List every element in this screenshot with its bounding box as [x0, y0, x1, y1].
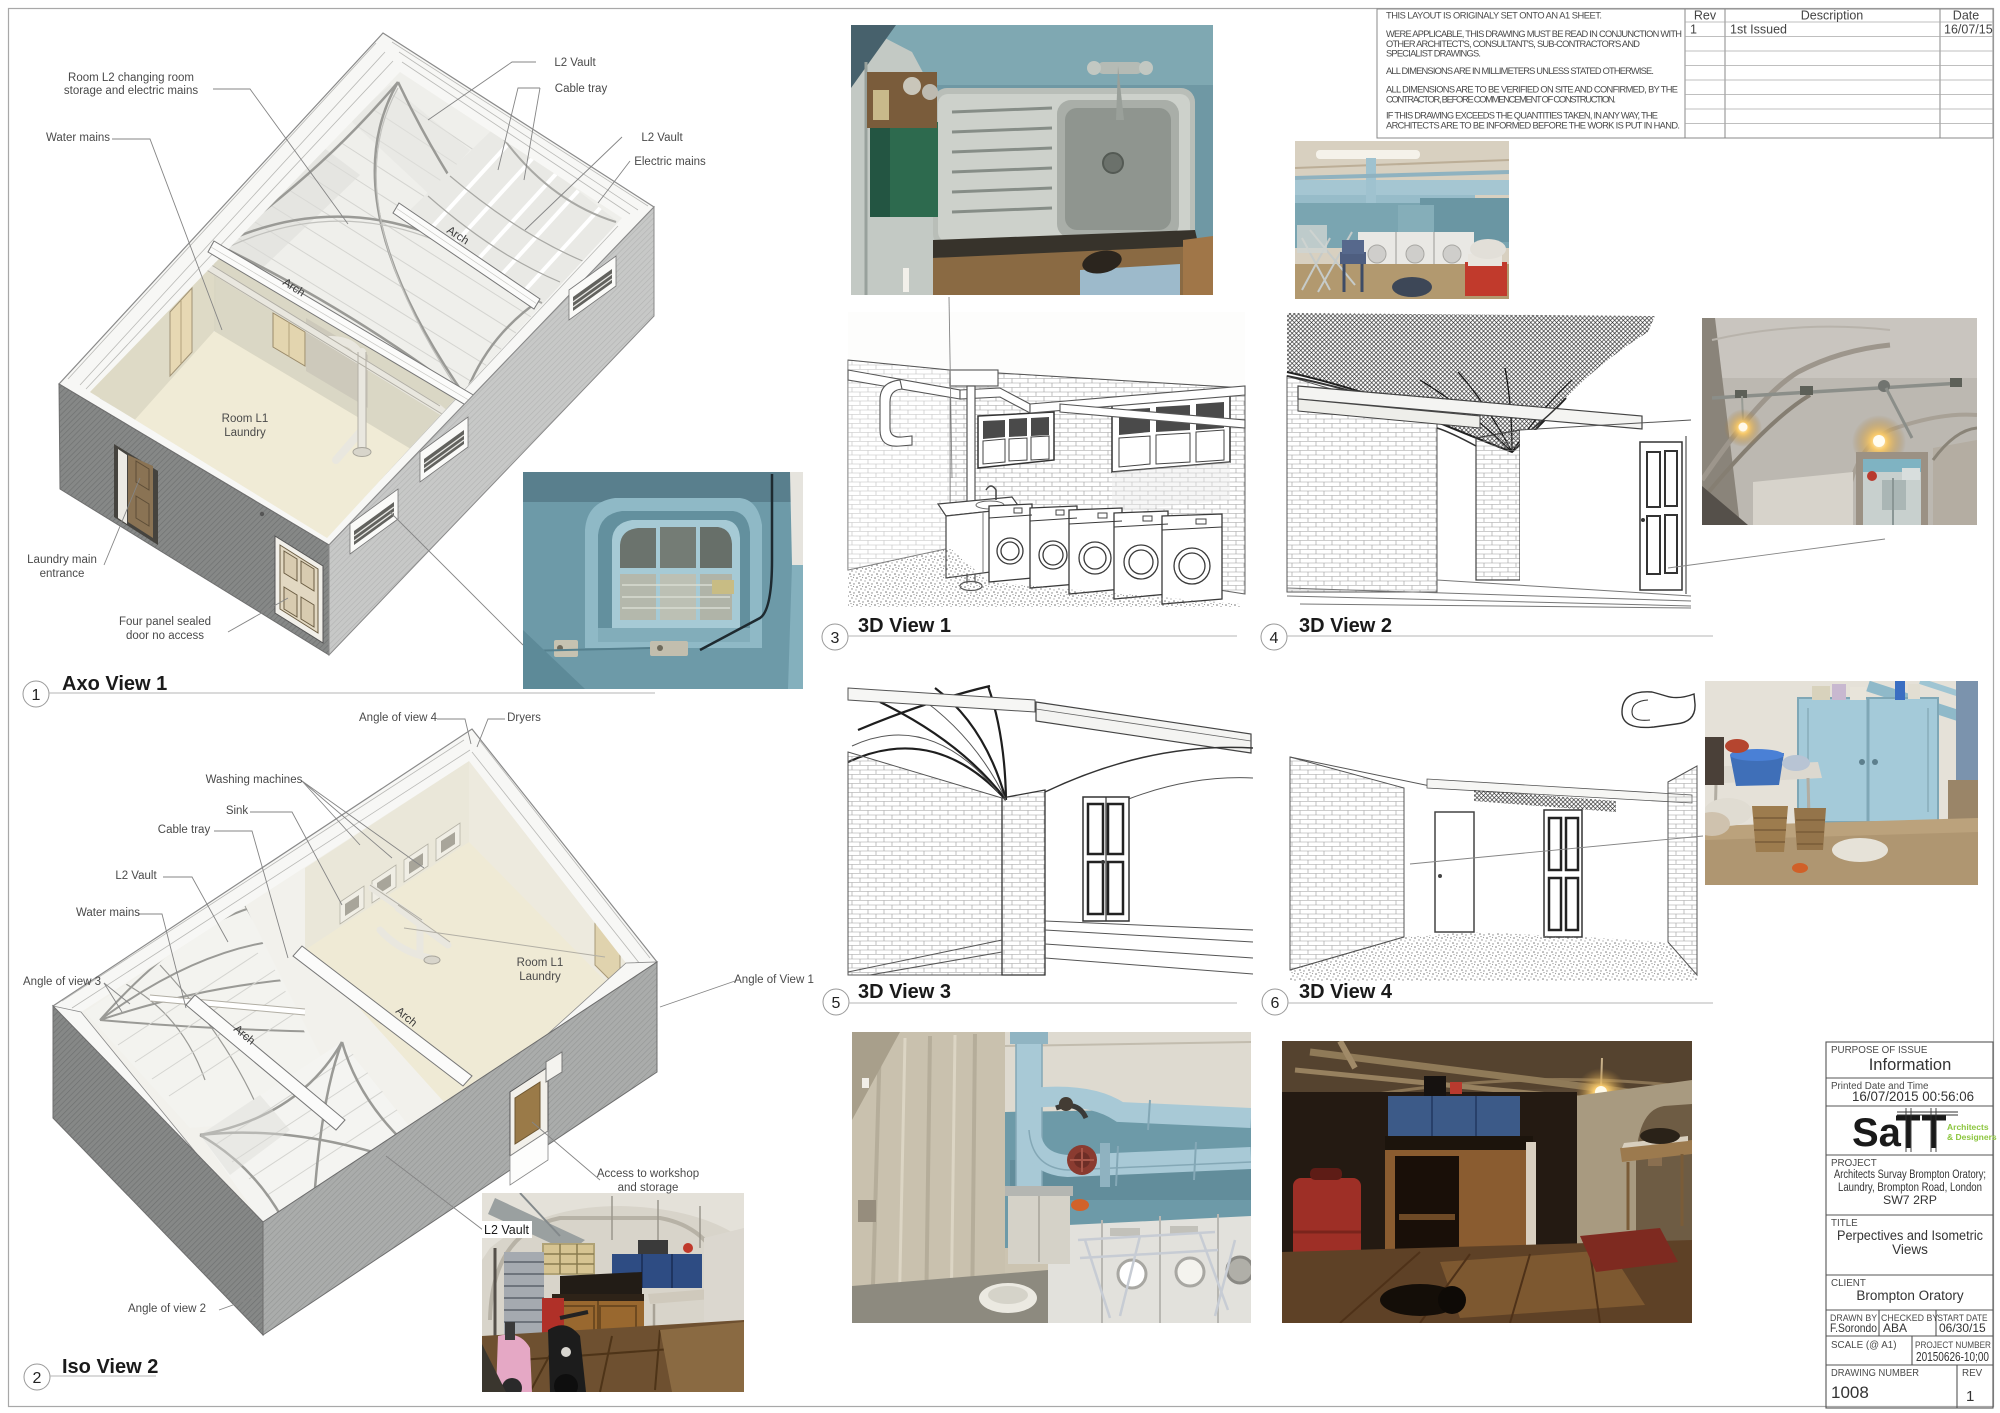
- svg-text:Washing machines: Washing machines: [206, 774, 303, 786]
- svg-text:ARCHITECTS ARE TO BE INFORMED: ARCHITECTS ARE TO BE INFORMED BEFORE THE…: [1386, 120, 1680, 130]
- svg-text:1008: 1008: [1831, 1383, 1869, 1402]
- svg-text:Brompton Oratory: Brompton Oratory: [1856, 1288, 1964, 1303]
- svg-text:Sa: Sa: [1852, 1111, 1902, 1155]
- svg-text:Laundry, Brompton Road, London: Laundry, Brompton Road, London: [1838, 1180, 1982, 1194]
- svg-text:1: 1: [1966, 1388, 1974, 1405]
- svg-text:Perpectives and Isometric: Perpectives and Isometric: [1837, 1228, 1983, 1243]
- svg-text:& Designers: & Designers: [1947, 1132, 1997, 1142]
- svg-text:Cable tray: Cable tray: [555, 83, 608, 95]
- svg-text:Room L1: Room L1: [222, 413, 269, 425]
- svg-text:16/07/2015 00:56:06: 16/07/2015 00:56:06: [1852, 1089, 1974, 1104]
- svg-text:3: 3: [831, 630, 840, 647]
- svg-text:and storage: and storage: [618, 1182, 679, 1194]
- svg-text:4: 4: [1270, 630, 1279, 647]
- svg-text:3D View 2: 3D View 2: [1299, 615, 1392, 637]
- svg-text:06/30/15: 06/30/15: [1939, 1321, 1986, 1335]
- svg-text:Water mains: Water mains: [46, 132, 110, 144]
- svg-text:1st Issued: 1st Issued: [1730, 23, 1787, 37]
- svg-text:CONTRACTOR, BEFORE COMMENCEMEN: CONTRACTOR, BEFORE COMMENCEMENT OF CONST…: [1386, 94, 1616, 104]
- svg-text:storage and electric mains: storage and electric mains: [64, 85, 198, 97]
- svg-text:Angle of view 4: Angle of view 4: [359, 712, 438, 724]
- svg-text:ALL DIMENSIONS ARE IN MILLIMET: ALL DIMENSIONS ARE IN MILLIMETERS UNLESS…: [1386, 66, 1654, 76]
- svg-text:Description: Description: [1801, 9, 1864, 23]
- svg-text:Axo View 1: Axo View 1: [62, 673, 167, 695]
- svg-text:Architects Survay Brompton Ora: Architects Survay Brompton Oratory;: [1834, 1167, 1986, 1181]
- svg-text:SPECIALIST DRAWINGS.: SPECIALIST DRAWINGS.: [1386, 49, 1481, 59]
- svg-text:Laundry: Laundry: [519, 971, 561, 983]
- svg-text:Room L2 changing room: Room L2 changing room: [68, 72, 194, 84]
- svg-text:3D View 3: 3D View 3: [858, 981, 951, 1003]
- svg-text:SW7 2RP: SW7 2RP: [1883, 1193, 1937, 1207]
- svg-text:THIS LAYOUT IS ORIGINALY SET O: THIS LAYOUT IS ORIGINALY SET ONTO AN A1 …: [1386, 11, 1602, 21]
- svg-text:Angle of view 2: Angle of view 2: [128, 1303, 206, 1315]
- svg-text:DRAWING NUMBER: DRAWING NUMBER: [1831, 1368, 1919, 1379]
- svg-text:ABA: ABA: [1883, 1321, 1907, 1335]
- svg-text:Date: Date: [1953, 9, 1979, 23]
- svg-text:Angle of View 1: Angle of View 1: [734, 974, 814, 986]
- svg-text:Dryers: Dryers: [507, 712, 541, 724]
- svg-text:2: 2: [33, 1370, 42, 1387]
- svg-text:16/07/15: 16/07/15: [1944, 23, 1993, 37]
- svg-text:Information: Information: [1869, 1056, 1952, 1074]
- svg-text:Room L1: Room L1: [517, 957, 564, 969]
- svg-text:5: 5: [832, 995, 841, 1012]
- svg-text:Access to workshop: Access to workshop: [597, 1168, 699, 1180]
- svg-text:IF THIS DRAWING EXCEEDS THE QU: IF THIS DRAWING EXCEEDS THE QUANTITIES T…: [1386, 111, 1658, 121]
- svg-text:WERE APPLICABLE, THIS DRAWING: WERE APPLICABLE, THIS DRAWING MUST BE RE…: [1386, 29, 1682, 39]
- svg-text:Views: Views: [1892, 1242, 1928, 1257]
- svg-text:SCALE (@ A1): SCALE (@ A1): [1831, 1340, 1896, 1351]
- svg-text:Angle of view 3: Angle of view 3: [23, 976, 101, 988]
- svg-text:Laundry main: Laundry main: [27, 554, 97, 566]
- svg-text:ALL DIMENSIONS ARE TO BE VERIF: ALL DIMENSIONS ARE TO BE VERIFIED ON SIT…: [1386, 85, 1678, 95]
- svg-text:Electric mains: Electric mains: [634, 156, 706, 168]
- svg-text:Laundry: Laundry: [224, 427, 266, 439]
- svg-text:Four panel sealed: Four panel sealed: [119, 616, 211, 628]
- svg-text:Architects: Architects: [1947, 1122, 1989, 1132]
- svg-text:PURPOSE OF ISSUE: PURPOSE OF ISSUE: [1831, 1045, 1928, 1056]
- svg-text:L2 Vault: L2 Vault: [641, 132, 683, 144]
- svg-text:3D View 4: 3D View 4: [1299, 981, 1393, 1003]
- svg-text:Sink: Sink: [226, 805, 249, 817]
- svg-text:PROJECT NUMBER: PROJECT NUMBER: [1915, 1340, 1991, 1350]
- svg-text:1: 1: [1690, 23, 1697, 37]
- svg-text:F.Sorondo: F.Sorondo: [1830, 1321, 1877, 1335]
- svg-text:3D View 1: 3D View 1: [858, 615, 951, 637]
- svg-text:OTHER ARCHITECT'S, CONSULTANT': OTHER ARCHITECT'S, CONSULTANT'S, SUB-CON…: [1386, 39, 1640, 49]
- svg-text:entrance: entrance: [40, 568, 85, 580]
- svg-text:Rev: Rev: [1694, 9, 1717, 23]
- svg-text:20150626-10;00: 20150626-10;00: [1916, 1350, 1989, 1364]
- svg-text:6: 6: [1271, 995, 1280, 1012]
- svg-text:1: 1: [32, 687, 41, 704]
- svg-text:Cable tray: Cable tray: [158, 824, 211, 836]
- svg-text:door no access: door no access: [126, 630, 204, 642]
- svg-text:REV: REV: [1962, 1368, 1983, 1379]
- svg-text:L2 Vault: L2 Vault: [484, 1223, 529, 1237]
- svg-text:L2 Vault: L2 Vault: [554, 57, 596, 69]
- svg-text:Iso View 2: Iso View 2: [62, 1356, 158, 1378]
- svg-text:Water mains: Water mains: [76, 907, 140, 919]
- svg-text:L2 Vault: L2 Vault: [115, 870, 157, 882]
